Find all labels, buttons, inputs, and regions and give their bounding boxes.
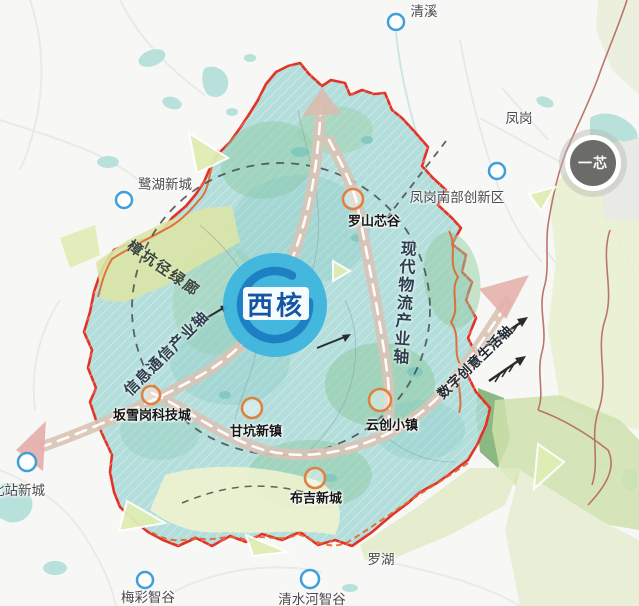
buji-marker — [305, 468, 325, 488]
qingxi-marker — [388, 14, 404, 30]
west-core-badge — [223, 253, 327, 357]
one-core-badge — [559, 129, 627, 197]
banxuegang-marker — [142, 386, 160, 404]
qingshuihe-marker — [301, 570, 319, 588]
gankeng-marker — [242, 398, 262, 418]
beizhan-marker — [18, 453, 36, 471]
luhu-marker — [116, 192, 132, 208]
map-canvas — [0, 0, 639, 606]
planning-map: 清溪 凤岗 鹭湖新城 凤岗南部创新区 北站新城 罗湖 梅彩智谷 清水河智谷 罗山… — [0, 0, 639, 606]
yunchuang-marker — [369, 389, 391, 411]
luoshan-marker — [343, 189, 363, 209]
fenggang-south-marker — [489, 163, 505, 179]
meicai-marker — [137, 572, 153, 588]
